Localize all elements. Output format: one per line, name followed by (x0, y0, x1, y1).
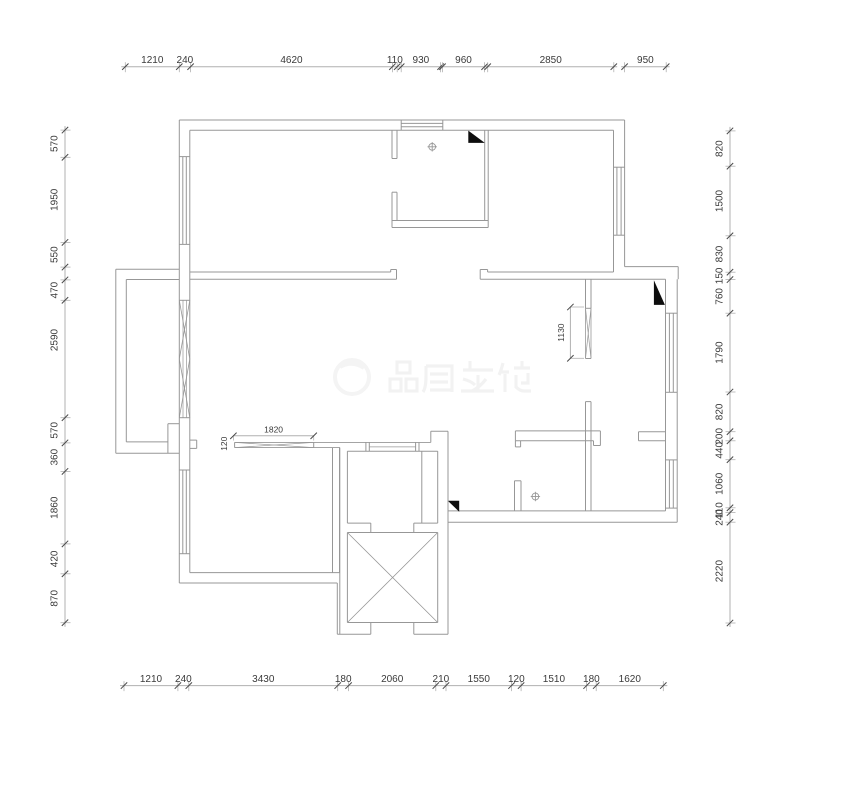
svg-text:240: 240 (177, 55, 194, 66)
svg-text:1130: 1130 (556, 323, 566, 342)
svg-text:930: 930 (413, 55, 430, 66)
svg-text:1620: 1620 (619, 674, 642, 685)
svg-text:820: 820 (715, 140, 726, 157)
svg-text:420: 420 (50, 550, 61, 567)
svg-text:180: 180 (583, 674, 600, 685)
svg-text:820: 820 (715, 403, 726, 420)
svg-text:830: 830 (715, 245, 726, 262)
svg-text:240: 240 (175, 674, 192, 685)
svg-text:960: 960 (455, 55, 472, 66)
svg-text:760: 760 (715, 288, 726, 305)
svg-text:470: 470 (50, 281, 61, 298)
svg-text:110: 110 (387, 55, 403, 66)
svg-text:2220: 2220 (715, 560, 726, 583)
svg-text:120: 120 (219, 436, 229, 450)
svg-text:1820: 1820 (264, 425, 283, 435)
svg-text:2590: 2590 (50, 328, 61, 351)
svg-text:2060: 2060 (381, 674, 404, 685)
svg-text:180: 180 (335, 674, 352, 685)
svg-text:120: 120 (508, 674, 525, 685)
svg-text:950: 950 (637, 55, 654, 66)
svg-text:440: 440 (715, 442, 726, 459)
svg-text:1860: 1860 (50, 496, 61, 519)
svg-text:1950: 1950 (50, 188, 61, 211)
svg-text:150: 150 (715, 267, 726, 284)
svg-text:4620: 4620 (280, 55, 303, 66)
svg-text:550: 550 (50, 246, 61, 263)
svg-text:1500: 1500 (715, 189, 726, 212)
svg-text:870: 870 (50, 590, 61, 607)
svg-text:1790: 1790 (715, 341, 726, 364)
svg-text:1550: 1550 (468, 674, 491, 685)
svg-text:210: 210 (433, 674, 450, 685)
svg-text:1510: 1510 (543, 674, 566, 685)
svg-text:1210: 1210 (140, 674, 163, 685)
svg-text:3430: 3430 (252, 674, 275, 685)
svg-text:240: 240 (715, 509, 726, 526)
svg-text:360: 360 (50, 448, 61, 465)
svg-text:1210: 1210 (141, 55, 164, 66)
svg-text:570: 570 (50, 135, 61, 152)
svg-text:2850: 2850 (540, 55, 563, 66)
svg-text:570: 570 (50, 422, 61, 439)
svg-text:1060: 1060 (715, 472, 726, 495)
